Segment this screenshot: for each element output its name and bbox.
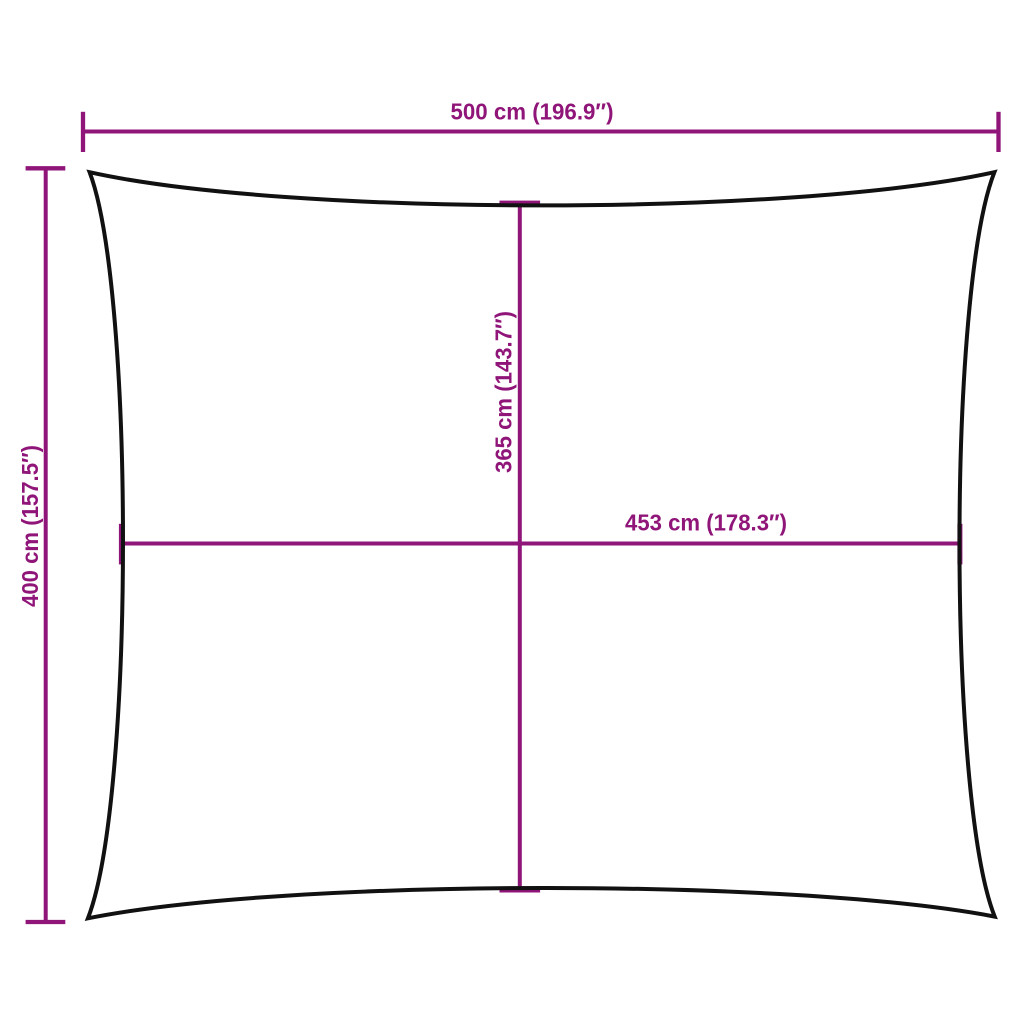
- svg-text:365 cm (143.7″): 365 cm (143.7″): [491, 311, 517, 473]
- svg-text:453 cm (178.3″): 453 cm (178.3″): [625, 510, 787, 536]
- svg-text:500 cm (196.9″): 500 cm (196.9″): [451, 99, 614, 125]
- svg-text:400 cm (157.5″): 400 cm (157.5″): [17, 445, 43, 607]
